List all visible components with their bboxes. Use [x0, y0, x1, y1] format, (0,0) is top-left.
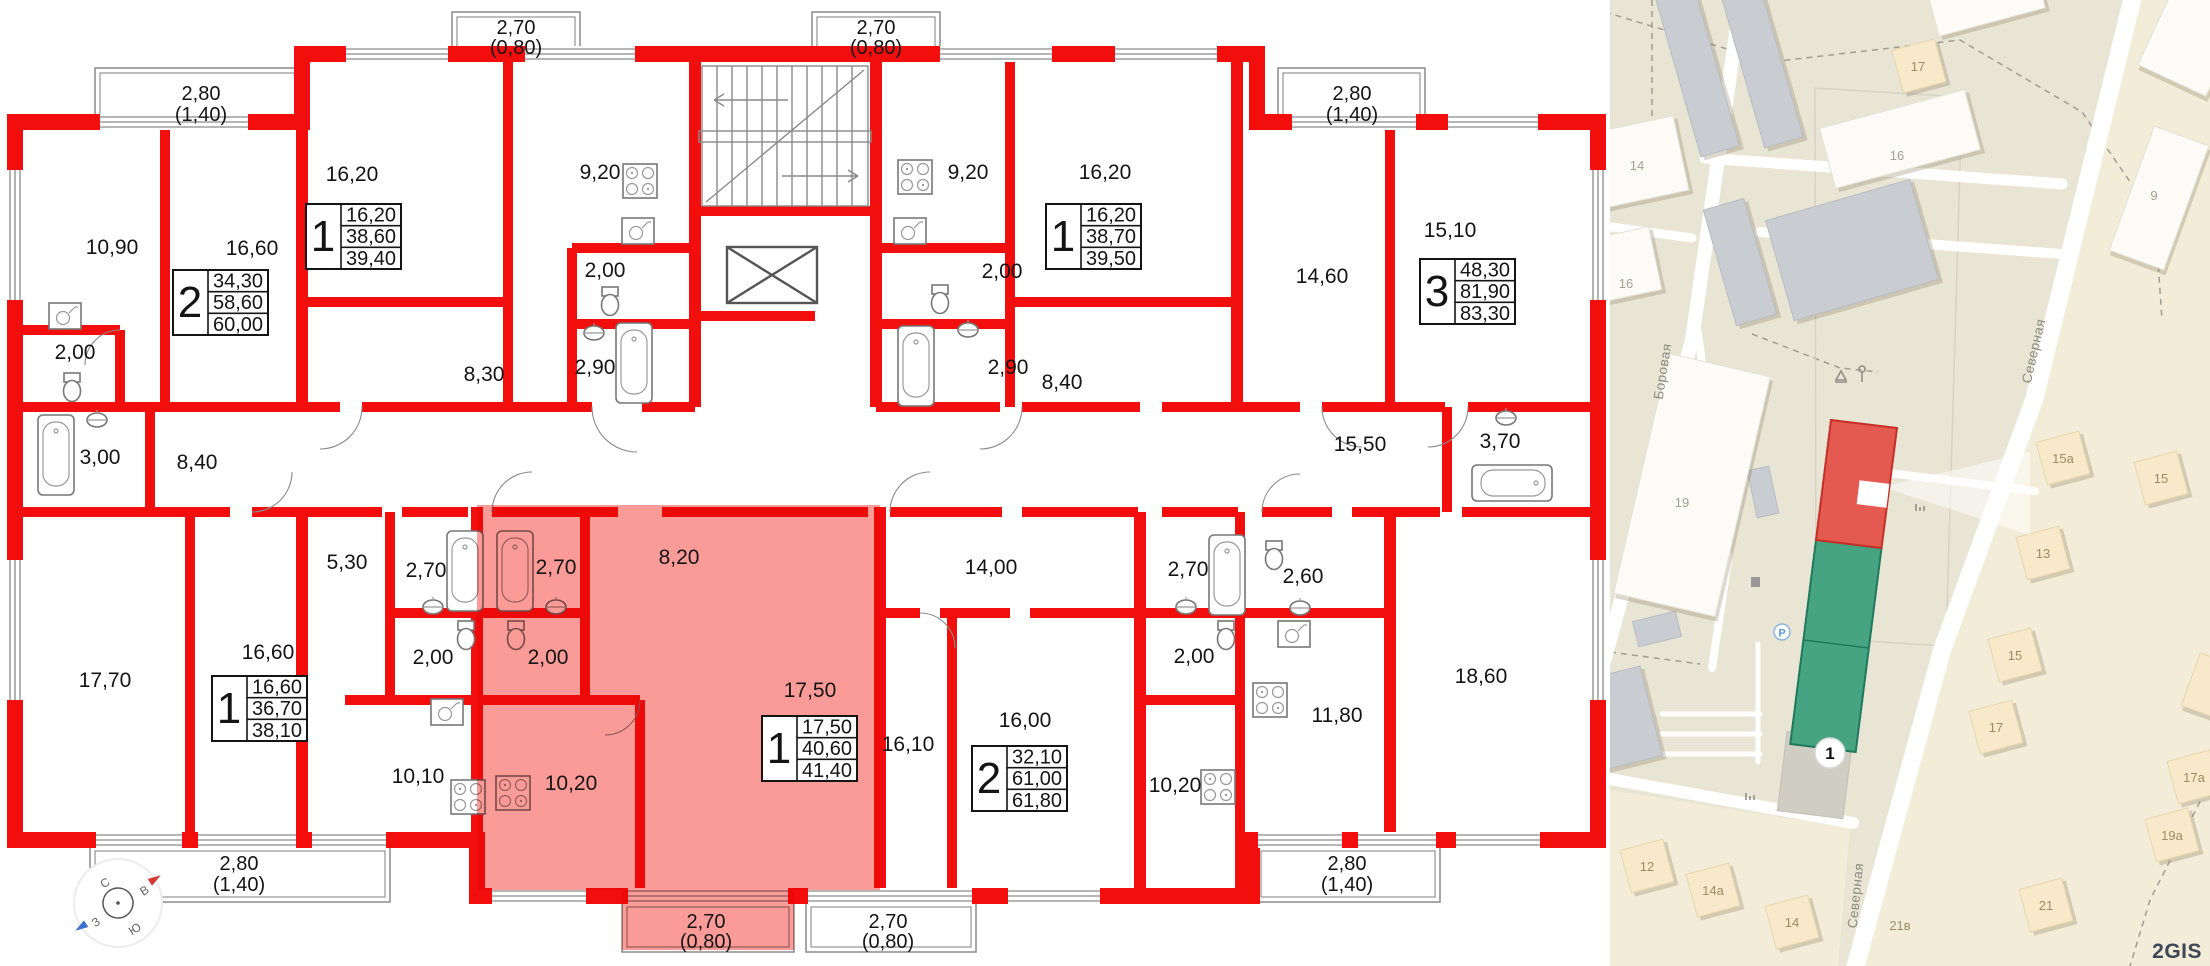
room-area-label: 3,00 [80, 446, 121, 469]
apartment-info-box-1-bottom-left: 1 16,60 36,70 38,10 [212, 676, 307, 742]
apartment-total-area: 38,10 [252, 720, 302, 742]
apartment-info-box-3-right: 3 48,30 81,90 83,30 [1420, 259, 1515, 325]
room-area-label: 10,10 [392, 765, 445, 788]
room-area-label: 9,20 [580, 161, 621, 184]
building-number: 17а [2183, 770, 2205, 785]
building-number: 21в [1889, 918, 1910, 933]
building-number: 14 [1785, 915, 1799, 930]
dimension-label: 2,80 [1328, 853, 1367, 875]
room-area-label: 17,70 [79, 669, 132, 692]
room-area-label: 15,10 [1424, 219, 1477, 242]
apartment-total-area: 61,80 [1012, 790, 1062, 812]
apartment-info-box-1-top-right: 1 16,20 38,70 39,50 [1046, 204, 1141, 270]
apartment-area: 40,60 [802, 738, 852, 760]
room-area-label: 2,00 [982, 260, 1023, 283]
apartment-area: 36,70 [252, 698, 302, 720]
apartment-rooms: 1 [767, 724, 791, 773]
room-area-label: 18,60 [1455, 665, 1508, 688]
map[interactable]: P 17 14 16 16 9 19 15а 15 13 15 17 17а 1… [1610, 0, 2210, 966]
building-number: 12 [1640, 859, 1654, 874]
trash-icon [1751, 577, 1760, 587]
room-area-label: 2,70 [1168, 558, 1209, 581]
room-area-label: 14,00 [965, 556, 1018, 579]
room-area-label: 2,00 [413, 646, 454, 669]
apartment-living-area: 16,60 [252, 677, 302, 699]
room-area-label: 2,00 [585, 259, 626, 282]
apartment-total-area: 41,40 [802, 760, 852, 782]
apartment-rooms: 3 [1425, 267, 1449, 316]
room-area-label: 17,50 [784, 679, 837, 702]
apartment-living-area: 16,20 [1086, 205, 1136, 227]
apartment-living-area: 17,50 [802, 717, 852, 739]
room-area-label: 2,90 [988, 356, 1029, 379]
dimension-label: 2,70 [857, 17, 896, 39]
dimension-label: (0,80) [490, 37, 542, 59]
parking-letter: P [1778, 628, 1785, 640]
building-number: 17 [1989, 720, 2003, 735]
apartment-rooms: 2 [178, 278, 202, 327]
dimension-label: (0,80) [680, 931, 732, 953]
room-area-label: 2,00 [528, 646, 569, 669]
apartment-rooms: 1 [217, 684, 241, 733]
dimension-label: 2,80 [1333, 83, 1372, 105]
room-area-label: 14,60 [1296, 265, 1349, 288]
building-number: 16 [1619, 276, 1633, 291]
room-area-label: 16,20 [326, 163, 379, 186]
apartment-area: 38,60 [346, 226, 396, 248]
apartment-total-area: 60,00 [213, 314, 263, 336]
room-area-label: 2,70 [536, 556, 577, 579]
room-area-label: 8,30 [464, 363, 505, 386]
floor-plan[interactable]: 2 34,30 58,60 60,00 1 16,20 38,60 39,40 … [0, 0, 1610, 966]
room-area-label: 8,40 [177, 451, 218, 474]
apartment-total-area: 83,30 [1460, 303, 1510, 325]
building-number: 15 [2008, 648, 2022, 663]
apartment-area: 58,60 [213, 292, 263, 314]
dimension-label: 2,70 [497, 17, 536, 39]
building-number: 19а [2161, 828, 2183, 843]
dimension-label: (1,40) [1326, 104, 1378, 126]
apartment-area: 61,00 [1012, 768, 1062, 790]
apartment-total-area: 39,50 [1086, 248, 1136, 270]
room-area-label: 15,50 [1334, 433, 1387, 456]
apartment-total-area: 39,40 [346, 248, 396, 270]
room-area-label: 2,90 [575, 356, 616, 379]
dimension-label: 2,80 [182, 83, 221, 105]
dimension-label: (1,40) [213, 874, 265, 896]
room-area-label: 2,60 [1283, 565, 1324, 588]
dimension-label: (1,40) [1321, 874, 1373, 896]
dimension-label: 2,70 [869, 911, 908, 933]
screenshot-root: 2 34,30 58,60 60,00 1 16,20 38,60 39,40 … [0, 0, 2210, 966]
room-area-label: 8,40 [1042, 371, 1083, 394]
dimension-label: (0,80) [850, 37, 902, 59]
selected-entrance [1857, 480, 1890, 507]
building-number: 19 [1675, 495, 1689, 510]
apartment-info-box-2-left: 2 34,30 58,60 60,00 [173, 270, 268, 336]
room-area-label: 10,20 [545, 772, 598, 795]
room-area-label: 2,00 [55, 341, 96, 364]
building-number: 17 [1911, 59, 1925, 74]
entrance-marker[interactable]: 1 [1815, 738, 1845, 768]
room-area-label: 5,30 [327, 551, 368, 574]
apartment-living-area: 16,20 [346, 205, 396, 227]
room-area-label: 16,60 [226, 237, 279, 260]
dimension-label: (1,40) [175, 104, 227, 126]
room-area-label: 16,10 [882, 733, 935, 756]
room-area-label: 8,20 [659, 546, 700, 569]
room-area-label: 2,00 [1174, 645, 1215, 668]
apartment-living-area: 32,10 [1012, 747, 1062, 769]
room-area-label: 16,00 [999, 709, 1052, 732]
entrance-marker-number: 1 [1825, 744, 1834, 763]
apartment-area: 81,90 [1460, 281, 1510, 303]
apartment-living-area: 48,30 [1460, 260, 1510, 282]
apartment-info-box-2-bottom-right: 2 32,10 61,00 61,80 [972, 746, 1067, 812]
apartment-living-area: 34,30 [213, 271, 263, 293]
apartment-info-box-1-top-left: 1 16,20 38,60 39,40 [306, 204, 401, 270]
room-area-label: 10,20 [1149, 774, 1202, 797]
room-area-label: 16,20 [1079, 161, 1132, 184]
building-number: 9 [2150, 188, 2157, 203]
building-number: 14 [1630, 158, 1644, 173]
2gis-logo: 2GIS [2152, 940, 2202, 963]
building-number: 14а [1702, 883, 1724, 898]
dimension-label: 2,70 [687, 911, 726, 933]
apartment-info-box-1-selected[interactable]: 1 17,50 40,60 41,40 [762, 716, 857, 782]
room-area-label: 2,70 [406, 559, 447, 582]
apartment-rooms: 2 [977, 754, 1001, 803]
building-number: 16 [1890, 148, 1904, 163]
apartment-rooms: 1 [1051, 212, 1075, 261]
room-area-label: 9,20 [948, 161, 989, 184]
building-number: 13 [2036, 546, 2050, 561]
apartment-area: 38,70 [1086, 226, 1136, 248]
building-number: 15 [2154, 471, 2168, 486]
building-number: 15а [2052, 451, 2074, 466]
room-area-label: 10,90 [86, 236, 139, 259]
room-area-label: 11,80 [1312, 704, 1363, 727]
elevator [727, 247, 817, 303]
dimension-label: 2,80 [220, 853, 259, 875]
room-area-label: 16,60 [242, 641, 295, 664]
apartment-rooms: 1 [311, 212, 335, 261]
dimension-label: (0,80) [862, 931, 914, 953]
building-number: 21 [2039, 898, 2053, 913]
room-area-label: 3,70 [1480, 430, 1521, 453]
